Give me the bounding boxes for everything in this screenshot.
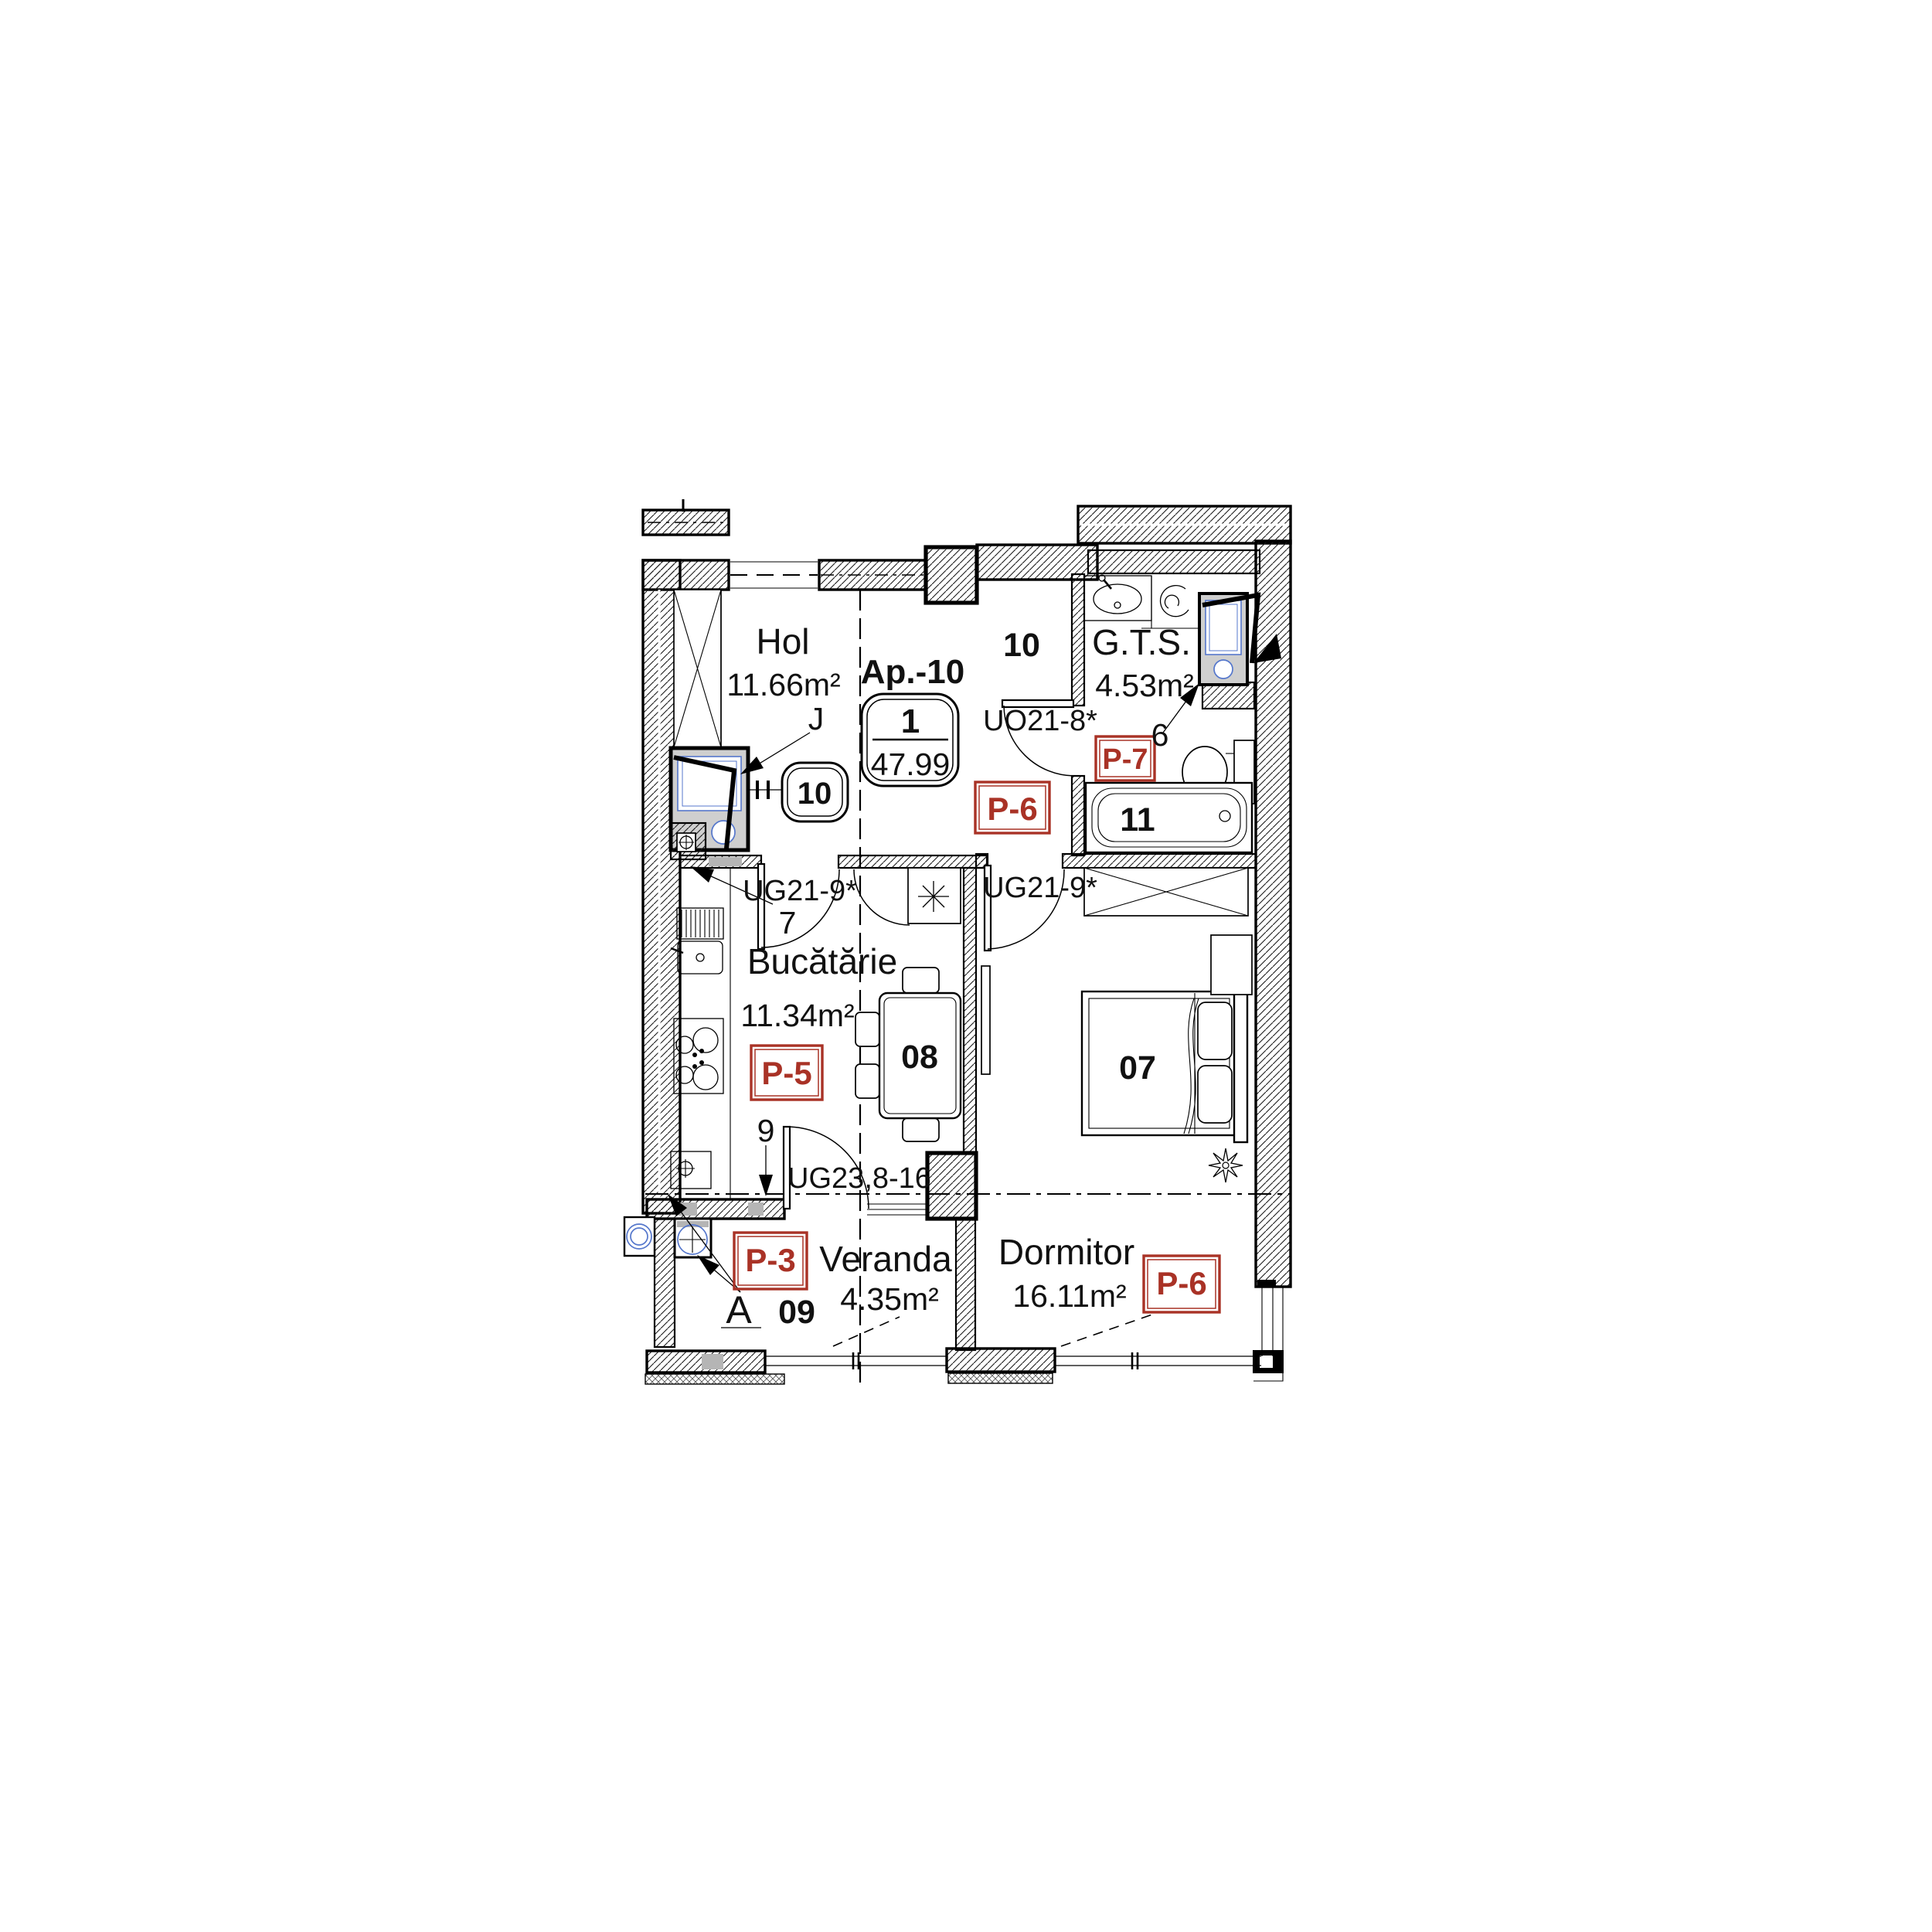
vestibule-zone-number: 10 (1003, 627, 1040, 664)
gts-shaft-number: 6 (1151, 717, 1169, 753)
bedroom-nightstand (1211, 935, 1252, 995)
gts-finish-tag: P-7 (1102, 743, 1148, 776)
hol-wardrobe (674, 590, 721, 747)
room-label-kitchen: Bucătărie (747, 941, 897, 981)
asterisk-icon (918, 881, 949, 912)
kitchen-door-code: UG21-9* (743, 875, 857, 907)
kitchen-door-number: 7 (779, 905, 797, 940)
entrance-opening (730, 562, 818, 588)
plant-icon (1209, 1148, 1243, 1182)
closet-tag-j: J (808, 701, 825, 736)
dormitor-finish-tag: P-6 (1156, 1265, 1206, 1301)
bedroom-door-code: UG21-9* (983, 872, 1097, 904)
bedroom-window (1055, 1352, 1261, 1369)
room-area-dormitor: 16.11m² (1012, 1278, 1126, 1314)
vestibule-finish-tag: P-6 (987, 791, 1037, 827)
table-number: 08 (901, 1039, 938, 1076)
axis-label-a: A (726, 1288, 752, 1332)
bedroom-tv-panel (981, 966, 990, 1074)
apartment-tag-title: Ap.-10 (861, 653, 964, 691)
shaft-tag-number: 10 (798, 777, 832, 811)
walls (643, 499, 1291, 1384)
veranda-finish-tag: P-3 (745, 1242, 795, 1278)
bed (1082, 985, 1247, 1142)
bathtub-number: 11 (1120, 801, 1155, 838)
room-label-dormitor: Dormitor (998, 1232, 1134, 1272)
bedroom-wardrobe (1084, 868, 1248, 916)
kitchen-sidelight (867, 1204, 927, 1215)
veranda-window (765, 1352, 947, 1369)
floor-plan: Hol 11.66m² J 10 Ap.-10 1 47.99 10 P-6 U… (0, 0, 1932, 1932)
room-area-hol: 11.66m² (726, 667, 840, 702)
veranda-zone-number: 09 (778, 1294, 815, 1331)
room-label-veranda: Veranda (819, 1239, 952, 1279)
gts-door-code: UO21-8* (983, 705, 1097, 737)
gts-sink (1084, 575, 1151, 621)
veranda-washing-machine (675, 1219, 711, 1257)
hol-utility-box (671, 823, 706, 859)
apartment-unit-number: 1 (901, 702, 920, 740)
cabinet-door-arc (854, 869, 910, 925)
kitchen-finish-tag: P-5 (761, 1055, 811, 1091)
apartment-total-area: 47.99 (871, 747, 951, 782)
balcony-door-code: UG23,8-16 (787, 1162, 931, 1195)
bed-number: 07 (1119, 1049, 1156, 1087)
room-area-gts: 4.53m² (1095, 668, 1194, 703)
gts-bathtub (1086, 783, 1252, 852)
veranda-sink (624, 1217, 655, 1256)
balcony-door-number: 9 (757, 1113, 775, 1148)
corner-window (1257, 1280, 1276, 1356)
vent-cabinet (908, 868, 961, 923)
room-area-kitchen: 11.34m² (740, 998, 854, 1033)
room-area-veranda: 4.35m² (840, 1281, 939, 1317)
room-label-hol: Hol (756, 621, 809, 662)
room-label-gts: G.T.S. (1092, 622, 1191, 662)
